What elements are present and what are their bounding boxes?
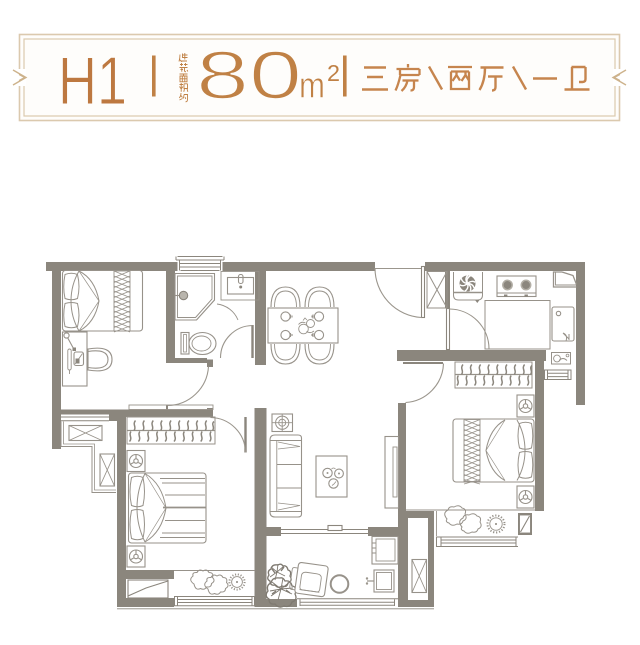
svg-text:2: 2 xyxy=(327,60,340,86)
svg-text:H1: H1 xyxy=(58,43,127,119)
svg-text:m: m xyxy=(299,65,325,106)
svg-text:80: 80 xyxy=(196,38,302,114)
